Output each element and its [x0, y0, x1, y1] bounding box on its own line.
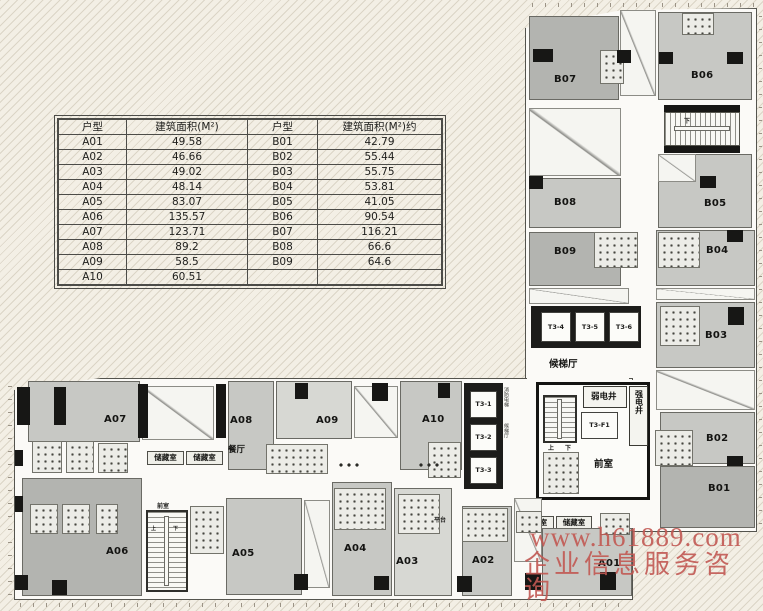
- unit-label-A04: A04: [344, 544, 367, 554]
- stair-down-label: 下: [173, 527, 178, 532]
- column: [15, 450, 23, 466]
- watermark-caption: 企业信息服务咨询: [524, 552, 763, 604]
- room-A09: [276, 381, 352, 439]
- dimension-ticks: [8, 386, 12, 596]
- elevator-T3-F1: T3-F1: [581, 412, 618, 439]
- elevator-label: T3-2: [475, 434, 491, 441]
- elevator-label: T3-F1: [589, 422, 610, 429]
- bathroom-fixtures: [658, 232, 700, 268]
- unit-label-B08: B08: [554, 198, 576, 208]
- cell-area: 64.6: [318, 255, 442, 270]
- bathroom-fixtures: [660, 306, 700, 346]
- unit-label-B04: B04: [706, 246, 728, 256]
- storage-label: 储藏室: [186, 451, 223, 465]
- elevator-T3-1: T3-1: [470, 391, 497, 418]
- cell-area: 46.66: [127, 150, 248, 165]
- column: [728, 307, 744, 325]
- storage-text: 储藏室: [193, 454, 216, 462]
- cell-area: 123.71: [127, 225, 248, 240]
- cell-area: 90.54: [318, 210, 442, 225]
- bathroom-fixtures: [32, 441, 62, 473]
- header-unit-b: 户型: [248, 120, 318, 135]
- cell-area: 58.5: [127, 255, 248, 270]
- cell-area: 135.57: [127, 210, 248, 225]
- elevator-T3-2: T3-2: [470, 424, 497, 451]
- column: [15, 575, 28, 590]
- bathroom-fixtures: [655, 430, 693, 466]
- table-row: A07 123.71 B07 116.21: [59, 225, 442, 240]
- cell-unit: A06: [59, 210, 127, 225]
- bathroom-fixtures: [30, 504, 58, 534]
- column: [54, 387, 66, 425]
- unit-label-A02: A02: [472, 556, 495, 566]
- column: [295, 383, 308, 399]
- column: [138, 384, 148, 438]
- dining-room-label: 餐厅: [228, 446, 245, 455]
- cell-unit: B09: [248, 255, 318, 270]
- cell-unit: A01: [59, 135, 127, 150]
- cell-area: 41.05: [318, 195, 442, 210]
- table-row: A01 49.58 B01 42.79: [59, 135, 442, 150]
- column: [457, 576, 472, 592]
- column: [15, 496, 23, 512]
- cell-unit: B02: [248, 150, 318, 165]
- bathroom-fixtures: [62, 504, 90, 534]
- elevator-label: T3-6: [616, 324, 632, 331]
- cell-unit: [248, 270, 318, 285]
- storage-text: 储藏室: [154, 454, 177, 462]
- cell-unit: A07: [59, 225, 127, 240]
- room-A07: [28, 381, 140, 442]
- column: [17, 387, 30, 425]
- table-header-row: 户型 建筑面积(M²) 户型 建筑面积(M²)约: [59, 120, 442, 135]
- cell-area: 89.2: [127, 240, 248, 255]
- table-row: A06 135.57 B06 90.54: [59, 210, 442, 225]
- lift-lobby-note: 候梯厅: [503, 423, 508, 438]
- bathroom-fixtures: [96, 504, 118, 534]
- room-A06: [22, 478, 142, 596]
- column: [659, 52, 673, 64]
- unit-label-A05: A05: [232, 549, 255, 559]
- bathroom-fixtures: [334, 488, 386, 530]
- weak-electric-label: 弱电井: [591, 393, 617, 402]
- table-row: A09 58.5 B09 64.6: [59, 255, 442, 270]
- column: [700, 176, 716, 188]
- cell-unit: A05: [59, 195, 127, 210]
- bathroom-fixtures: [428, 442, 461, 478]
- unit-label-B02: B02: [706, 434, 728, 444]
- elevator-T3-3: T3-3: [470, 457, 497, 484]
- cell-unit: A04: [59, 180, 127, 195]
- cell-area: 42.79: [318, 135, 442, 150]
- bathroom-fixtures: [682, 13, 714, 35]
- dimension-ticks: [759, 16, 762, 524]
- lift-lobby-label: 候梯厅: [549, 360, 578, 370]
- table-row: A04 48.14 B04 53.81: [59, 180, 442, 195]
- front-room-small-label: 前室: [157, 504, 169, 510]
- stair-down-label: 下: [684, 119, 690, 125]
- column: [294, 574, 308, 590]
- cell-area: 83.07: [127, 195, 248, 210]
- column: [438, 383, 450, 398]
- stair-wall: [664, 105, 740, 112]
- unit-label-A09: A09: [316, 416, 339, 426]
- elevator-T3-4: T3-4: [541, 312, 571, 342]
- table-row: A03 49.02 B03 55.75: [59, 165, 442, 180]
- table-row: A05 83.07 B05 41.05: [59, 195, 442, 210]
- front-room-label: 前室: [594, 460, 613, 470]
- cell-unit: B08: [248, 240, 318, 255]
- column: [52, 580, 67, 595]
- elevator-label: T3-5: [582, 324, 598, 331]
- column: [727, 52, 743, 64]
- cell-unit: A03: [59, 165, 127, 180]
- bathroom-fixtures: [398, 494, 440, 534]
- elevator-label: T3-1: [475, 401, 491, 408]
- strong-electric-label: 强电井: [635, 390, 643, 414]
- unit-label-B03: B03: [705, 331, 727, 341]
- stair-up-label: 上: [151, 527, 156, 532]
- column: [216, 384, 226, 438]
- cell-area: 49.02: [127, 165, 248, 180]
- column: [529, 176, 543, 189]
- column: [374, 576, 389, 590]
- cell-area: 66.6: [318, 240, 442, 255]
- cell-unit: B04: [248, 180, 318, 195]
- table-row: A08 89.2 B08 66.6: [59, 240, 442, 255]
- table-row: A02 46.66 B02 55.44: [59, 150, 442, 165]
- stair-wall: [664, 146, 740, 153]
- closet-room: [529, 288, 629, 304]
- cell-unit: A09: [59, 255, 127, 270]
- platform-label: 平台: [434, 518, 446, 524]
- stair-rail: [674, 126, 730, 131]
- floor-plan-page: 户型 建筑面积(M²) 户型 建筑面积(M²)约 A01 49.58 B01 4…: [0, 0, 763, 611]
- closet-room: [656, 288, 755, 300]
- bathroom-fixtures: [543, 452, 579, 494]
- unit-label-A10: A10: [422, 415, 445, 425]
- column: [727, 230, 743, 242]
- cell-area: 48.14: [127, 180, 248, 195]
- stair-rail: [164, 516, 169, 586]
- header-area-b: 建筑面积(M²)约: [318, 120, 442, 135]
- header-area-a: 建筑面积(M²): [127, 120, 248, 135]
- cell-unit: B07: [248, 225, 318, 240]
- cell-unit: B06: [248, 210, 318, 225]
- cell-unit: B05: [248, 195, 318, 210]
- column: [372, 383, 388, 401]
- bathroom-fixtures: [462, 508, 508, 542]
- area-table-grid: 户型 建筑面积(M²) 户型 建筑面积(M²)约 A01 49.58 B01 4…: [58, 119, 442, 285]
- cell-area: 49.58: [127, 135, 248, 150]
- area-table: 户型 建筑面积(M²) 户型 建筑面积(M²)约 A01 49.58 B01 4…: [57, 118, 443, 286]
- closet-room: [529, 108, 621, 176]
- elevator-label: T3-3: [475, 467, 491, 474]
- cell-area: [318, 270, 442, 285]
- unit-label-B01: B01: [708, 484, 730, 494]
- room-A05: [226, 498, 302, 595]
- unit-label-A08: A08: [230, 416, 253, 426]
- closet-room: [658, 154, 696, 182]
- cell-area: 53.81: [318, 180, 442, 195]
- unit-label-B05: B05: [704, 199, 726, 209]
- storage-label: 储藏室: [147, 451, 184, 465]
- cell-unit: A08: [59, 240, 127, 255]
- unit-label-A07: A07: [104, 415, 127, 425]
- unit-label-B07: B07: [554, 75, 576, 85]
- bathroom-fixtures: [190, 506, 224, 554]
- cell-area: 60.51: [127, 270, 248, 285]
- elevator-label: T3-4: [548, 324, 564, 331]
- closet-room: [656, 370, 755, 410]
- closet-room: [142, 386, 214, 440]
- elevator-T3-5: T3-5: [575, 312, 605, 342]
- cell-unit: B01: [248, 135, 318, 150]
- cell-unit: A02: [59, 150, 127, 165]
- bathroom-fixtures: [98, 443, 128, 473]
- column: [533, 49, 553, 62]
- fire-lift-note: 消防电梯: [503, 387, 508, 407]
- bathroom-fixtures: [266, 444, 328, 474]
- fixture-dots: [337, 461, 363, 471]
- unit-label-B06: B06: [691, 71, 713, 81]
- bathroom-fixtures: [594, 232, 638, 268]
- stair-rail: [557, 399, 562, 439]
- unit-label-B09: B09: [554, 247, 576, 257]
- table-row: A10 60.51: [59, 270, 442, 285]
- room-B01: [660, 466, 755, 528]
- watermark-url: www.h61889.com: [530, 524, 742, 551]
- cell-area: 55.75: [318, 165, 442, 180]
- dimension-ticks: [532, 3, 754, 7]
- elevator-T3-6: T3-6: [609, 312, 639, 342]
- column: [617, 50, 631, 63]
- unit-label-A06: A06: [106, 547, 129, 557]
- header-unit-a: 户型: [59, 120, 127, 135]
- cell-area: 55.44: [318, 150, 442, 165]
- unit-label-A03: A03: [396, 557, 419, 567]
- cell-unit: A10: [59, 270, 127, 285]
- cell-unit: B03: [248, 165, 318, 180]
- cell-area: 116.21: [318, 225, 442, 240]
- fixture-dots: [417, 461, 443, 471]
- bathroom-fixtures: [66, 441, 94, 473]
- strong-electric-shaft: 强电井: [629, 386, 648, 446]
